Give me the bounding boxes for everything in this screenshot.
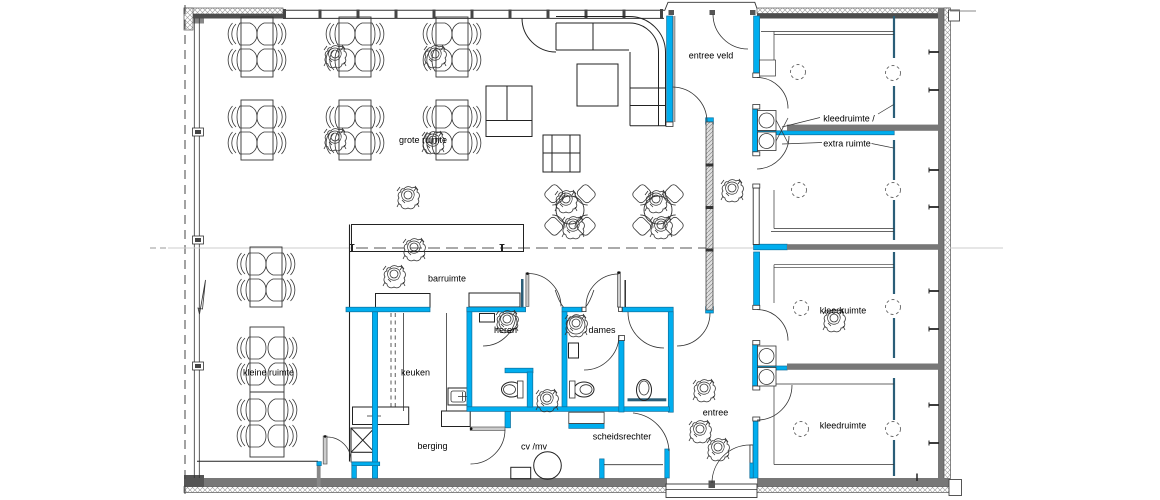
svg-text:entree veld: entree veld bbox=[689, 51, 734, 61]
svg-text:extra ruimte: extra ruimte bbox=[823, 139, 871, 149]
svg-text:kleedruimte: kleedruimte bbox=[820, 421, 867, 431]
svg-text:heren: heren bbox=[494, 325, 517, 335]
svg-text:kleedruimte /: kleedruimte / bbox=[823, 114, 875, 124]
svg-text:keuken: keuken bbox=[401, 368, 430, 378]
svg-text:kleedruimte: kleedruimte bbox=[820, 306, 867, 316]
svg-text:grote ruimte: grote ruimte bbox=[399, 135, 447, 145]
svg-text:dames: dames bbox=[588, 325, 616, 335]
svg-text:kleine ruimte: kleine ruimte bbox=[243, 368, 294, 378]
svg-text:berging: berging bbox=[417, 441, 447, 451]
svg-text:cv /mv: cv /mv bbox=[521, 442, 547, 452]
svg-text:entree: entree bbox=[703, 408, 729, 418]
svg-text:scheidsrechter: scheidsrechter bbox=[593, 432, 652, 442]
svg-text:barruimte: barruimte bbox=[428, 274, 466, 284]
